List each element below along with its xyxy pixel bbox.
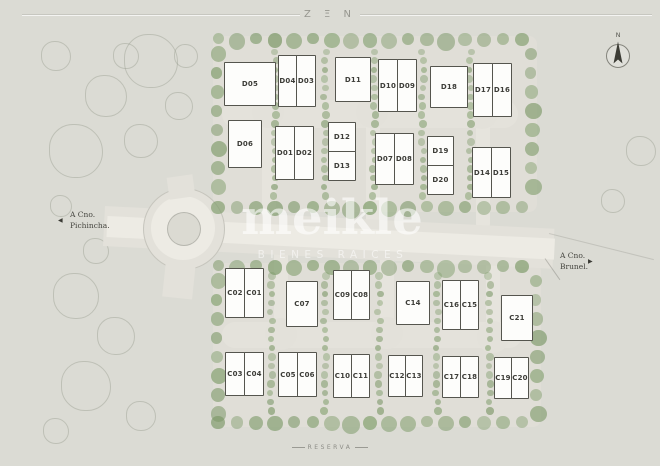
- lot-label: D09: [399, 82, 415, 90]
- tree: [433, 371, 440, 378]
- tree: [515, 260, 528, 273]
- lot-label: D07: [377, 155, 393, 163]
- lot-label: C03: [227, 370, 242, 378]
- tree: [342, 416, 360, 434]
- compass-icon: N: [600, 28, 636, 76]
- tree: [433, 353, 441, 361]
- lot-C17[interactable]: C17: [442, 356, 461, 398]
- tree: [496, 416, 509, 429]
- tree: [377, 291, 384, 298]
- tree: [433, 380, 440, 387]
- lot-D20[interactable]: D20: [427, 165, 454, 195]
- tree: [458, 260, 472, 274]
- tree: [438, 416, 453, 431]
- lot-C02[interactable]: C02: [225, 268, 245, 318]
- top-frame-line-left: [22, 14, 300, 15]
- tree: [249, 416, 264, 431]
- road-stub-south: [162, 261, 196, 300]
- tree: [467, 120, 475, 128]
- lot-label: C15: [462, 301, 477, 309]
- east-road-label: A Cno. Brunel.: [560, 251, 600, 272]
- lot-label: D12: [334, 133, 350, 141]
- lot-D04[interactable]: D04: [278, 55, 297, 107]
- tree: [231, 416, 244, 429]
- tree: [400, 416, 416, 432]
- tree: [322, 309, 328, 315]
- lot-label: C20: [512, 374, 527, 382]
- tree: [372, 111, 379, 118]
- tree: [370, 102, 377, 109]
- tree: [418, 111, 425, 118]
- tree: [418, 130, 424, 136]
- lot-label: C04: [246, 370, 261, 378]
- sketch-tree: [41, 41, 71, 71]
- lot-label: C21: [509, 314, 524, 322]
- lot-D19[interactable]: D19: [427, 136, 454, 166]
- tree: [267, 416, 282, 431]
- reserva-label: RESERVA: [303, 444, 357, 451]
- lot-label: D04: [279, 77, 295, 85]
- lot-label: D18: [441, 83, 457, 91]
- tree: [434, 336, 440, 342]
- tree: [486, 371, 493, 378]
- tree: [211, 312, 224, 325]
- west-arrow-icon: ◀: [58, 217, 63, 224]
- lot-label: D19: [432, 147, 448, 155]
- sketch-tree: [626, 136, 656, 166]
- lot-label: D03: [298, 77, 314, 85]
- lot-C16[interactable]: C16: [442, 280, 461, 330]
- lot-label: D13: [334, 162, 350, 170]
- tree: [487, 281, 494, 288]
- tree: [433, 300, 440, 307]
- tree: [375, 380, 382, 387]
- tree: [381, 416, 397, 432]
- lot-label: D17: [475, 86, 491, 94]
- lot-label: D05: [242, 80, 258, 88]
- lot-C19[interactable]: C19: [494, 357, 512, 399]
- tree: [269, 371, 276, 378]
- tree: [525, 179, 542, 196]
- lot-D10[interactable]: D10: [378, 59, 398, 112]
- east-road-line1: A Cno.: [560, 251, 600, 262]
- tree: [321, 371, 328, 378]
- masterplan-canvas: D05D04D03D11D10D09D18D17D16D06D01D02D12D…: [0, 0, 660, 466]
- lot-label: D14: [474, 169, 490, 177]
- tree: [525, 85, 539, 99]
- tree: [324, 33, 340, 49]
- lot-C09[interactable]: C09: [333, 270, 352, 320]
- tree: [485, 300, 492, 307]
- tree: [468, 49, 475, 56]
- lot-C03[interactable]: C03: [225, 352, 245, 396]
- lot-D18[interactable]: D18: [430, 66, 468, 108]
- lot-label: D02: [296, 149, 312, 157]
- tree: [322, 67, 328, 73]
- tree: [323, 353, 331, 361]
- tree: [322, 272, 330, 280]
- tree: [477, 33, 491, 47]
- tree: [211, 406, 227, 422]
- tree: [486, 407, 494, 415]
- tree: [374, 371, 381, 378]
- tree: [321, 380, 328, 387]
- tree: [421, 67, 427, 73]
- tree: [213, 33, 224, 44]
- lot-D05[interactable]: D05: [224, 62, 276, 106]
- tree: [231, 201, 244, 214]
- lot-label: D01: [277, 149, 293, 157]
- tree: [434, 318, 441, 325]
- tree: [321, 281, 328, 288]
- sketch-tree: [165, 92, 193, 120]
- tree: [525, 48, 537, 60]
- tree: [322, 102, 329, 109]
- lot-D01[interactable]: D01: [275, 126, 295, 180]
- tree: [268, 407, 276, 415]
- lot-C07[interactable]: C07: [286, 281, 318, 327]
- tree: [323, 399, 329, 405]
- lot-label: C06: [299, 371, 314, 379]
- lot-label: C17: [444, 373, 459, 381]
- tree: [435, 309, 441, 315]
- lot-C06[interactable]: C06: [297, 352, 317, 397]
- tree: [420, 260, 433, 273]
- tree: [434, 281, 441, 288]
- tree: [530, 369, 544, 383]
- roundabout-island: [167, 212, 201, 246]
- tree: [271, 49, 278, 56]
- tree: [400, 201, 416, 217]
- tree: [211, 332, 222, 343]
- lot-label: D06: [237, 140, 253, 148]
- sketch-tree: [61, 361, 111, 411]
- tree: [267, 399, 273, 405]
- tree: [459, 201, 471, 213]
- lot-D03[interactable]: D03: [296, 55, 316, 107]
- tree: [420, 75, 428, 83]
- lot-C15[interactable]: C15: [460, 280, 479, 330]
- lot-D13[interactable]: D13: [328, 151, 356, 181]
- lot-label: C05: [280, 371, 295, 379]
- tree: [211, 273, 227, 289]
- tree: [434, 272, 442, 280]
- tree: [268, 327, 275, 334]
- tree: [211, 294, 222, 305]
- tree: [322, 363, 329, 370]
- sketch-tree: [85, 75, 127, 117]
- tree: [459, 416, 471, 428]
- tree: [421, 416, 432, 427]
- tree: [307, 260, 318, 271]
- sketch-tree: [113, 43, 139, 69]
- lot-C18[interactable]: C18: [460, 356, 479, 398]
- tree: [420, 33, 433, 46]
- east-road-line2: Brunel.: [560, 262, 600, 273]
- lot-C14[interactable]: C14: [396, 281, 430, 325]
- lot-C05[interactable]: C05: [278, 352, 298, 397]
- lot-D07[interactable]: D07: [375, 133, 395, 185]
- lot-label: C09: [335, 291, 350, 299]
- lot-D08[interactable]: D08: [394, 133, 414, 185]
- lot-D15[interactable]: D15: [491, 147, 511, 198]
- tree: [375, 281, 382, 288]
- tree: [268, 353, 276, 361]
- tree: [487, 380, 494, 387]
- lot-C13[interactable]: C13: [405, 355, 423, 397]
- lot-label: C13: [406, 372, 421, 380]
- tree: [323, 49, 330, 56]
- tree: [307, 33, 318, 44]
- tree: [433, 345, 439, 351]
- lot-C21[interactable]: C21: [501, 295, 533, 341]
- tree: [322, 192, 329, 199]
- lot-C12[interactable]: C12: [388, 355, 406, 397]
- compass-north-label: N: [616, 31, 621, 39]
- tree: [486, 291, 493, 298]
- tree: [322, 85, 328, 91]
- lot-D02[interactable]: D02: [294, 126, 314, 180]
- tree: [269, 318, 276, 325]
- tree: [433, 291, 440, 298]
- tree: [320, 407, 328, 415]
- tree: [484, 272, 492, 280]
- tree: [267, 281, 274, 288]
- lot-label: D08: [396, 155, 412, 163]
- lot-label: C11: [353, 372, 368, 380]
- lot-C04[interactable]: C04: [244, 352, 264, 396]
- lot-label: C14: [405, 299, 420, 307]
- lot-label: D16: [494, 86, 510, 94]
- lot-D17[interactable]: D17: [473, 63, 493, 117]
- lot-label: C07: [294, 300, 309, 308]
- tree: [369, 192, 376, 199]
- lot-label: C18: [462, 373, 477, 381]
- lot-D12[interactable]: D12: [328, 122, 356, 152]
- lot-C08[interactable]: C08: [351, 270, 370, 320]
- tree: [487, 336, 493, 342]
- lot-label: D20: [432, 176, 448, 184]
- tree: [421, 201, 432, 212]
- lot-D06[interactable]: D06: [228, 120, 262, 168]
- tree: [375, 345, 381, 351]
- tree: [381, 33, 397, 49]
- tree: [381, 201, 397, 217]
- west-road-line1: A Cno.: [70, 210, 112, 221]
- tree: [371, 67, 377, 73]
- tree: [377, 407, 385, 415]
- tree: [375, 272, 383, 280]
- lot-D09[interactable]: D09: [397, 59, 417, 112]
- west-road-label: A Cno. Pichincha.: [70, 210, 112, 231]
- top-frame-line-right: [360, 14, 652, 15]
- lot-label: C12: [389, 372, 404, 380]
- tree: [211, 85, 224, 98]
- tree: [371, 85, 377, 91]
- tree: [419, 120, 427, 128]
- lot-label: C16: [444, 301, 459, 309]
- tree: [363, 33, 378, 48]
- tree: [496, 201, 509, 214]
- tree: [486, 309, 492, 315]
- tree: [467, 138, 475, 146]
- tree: [363, 416, 377, 430]
- lot-label: C01: [246, 289, 261, 297]
- tree: [270, 192, 277, 199]
- lot-C10[interactable]: C10: [333, 354, 352, 398]
- tree: [438, 201, 453, 216]
- tree: [525, 103, 542, 120]
- tree: [375, 353, 383, 361]
- tree: [381, 260, 397, 276]
- tree: [458, 33, 472, 47]
- sketch-tree: [50, 195, 72, 217]
- tree: [419, 192, 426, 199]
- tree: [211, 67, 222, 78]
- tree: [321, 75, 329, 83]
- tree: [374, 309, 380, 315]
- tree: [376, 336, 382, 342]
- tree: [515, 33, 528, 46]
- tree: [525, 67, 537, 79]
- tree: [377, 318, 384, 325]
- lot-C01[interactable]: C01: [244, 268, 264, 318]
- tree: [530, 275, 542, 287]
- tree: [432, 390, 438, 396]
- lot-label: D15: [493, 169, 509, 177]
- tree: [371, 94, 378, 101]
- tree: [342, 201, 360, 219]
- east-arrow-icon: ▶: [588, 258, 593, 265]
- lot-label: C19: [495, 374, 510, 382]
- project-name: Z Ξ N: [300, 9, 360, 20]
- road-stub-north: [167, 174, 196, 199]
- tree: [371, 120, 379, 128]
- tree: [376, 363, 383, 370]
- tree: [211, 46, 227, 62]
- tree: [530, 406, 547, 423]
- lot-D14[interactable]: D14: [472, 147, 492, 198]
- lot-C20[interactable]: C20: [511, 357, 529, 399]
- sketch-tree: [97, 317, 135, 355]
- lot-label: C08: [353, 291, 368, 299]
- lot-D11[interactable]: D11: [335, 57, 371, 102]
- tree: [267, 201, 282, 216]
- tree: [486, 327, 493, 334]
- tree: [324, 201, 339, 216]
- lot-D16[interactable]: D16: [492, 63, 512, 117]
- west-road-line2: Pichincha.: [70, 221, 112, 232]
- tree: [437, 33, 455, 51]
- tree: [465, 192, 472, 199]
- tree: [376, 327, 383, 334]
- tree: [434, 407, 442, 415]
- tree: [322, 111, 329, 118]
- sketch-tree: [53, 273, 99, 319]
- tree: [267, 380, 274, 387]
- tree: [376, 390, 382, 396]
- tree: [477, 416, 492, 431]
- lot-label: D10: [380, 82, 396, 90]
- tree: [268, 33, 283, 48]
- lot-label: D11: [345, 76, 361, 84]
- tree: [211, 201, 224, 214]
- tree: [211, 141, 227, 157]
- sketch-tree: [174, 44, 198, 68]
- tree: [271, 184, 278, 191]
- tree: [525, 123, 540, 138]
- tree: [419, 102, 426, 109]
- tree: [229, 33, 246, 50]
- tree: [324, 416, 339, 431]
- tree: [213, 260, 224, 271]
- tree: [487, 390, 493, 396]
- tree: [211, 179, 227, 195]
- sketch-tree: [124, 124, 158, 158]
- lot-C11[interactable]: C11: [351, 354, 370, 398]
- sketch-tree: [49, 124, 103, 178]
- tree: [211, 105, 222, 116]
- tree: [485, 345, 491, 351]
- sketch-tree: [43, 418, 69, 444]
- tree: [486, 353, 494, 361]
- lot-label: C02: [227, 289, 242, 297]
- tree: [420, 157, 426, 163]
- lot-label: C10: [335, 372, 350, 380]
- sketch-tree: [126, 401, 156, 431]
- tree: [530, 350, 545, 365]
- tree: [250, 33, 262, 45]
- tree: [272, 111, 279, 118]
- sketch-tree: [601, 189, 625, 213]
